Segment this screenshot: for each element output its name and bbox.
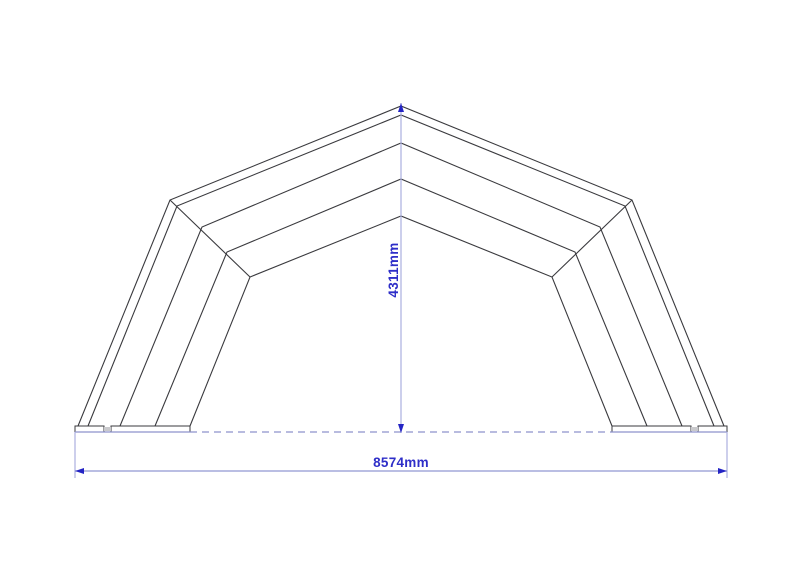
baseplate-gap-2 (691, 427, 698, 431)
dimension-layer (75, 103, 727, 478)
width-dimension-label: 8574mm (373, 455, 429, 470)
baseplate-gap-1 (104, 427, 111, 431)
baseplate-3 (612, 426, 691, 432)
technical-drawing: 4311mm 8574mm (0, 0, 800, 566)
height-dimension-label: 4311mm (386, 242, 401, 297)
baseplate-1 (75, 426, 104, 432)
width-dimension-arrow-right (718, 468, 727, 474)
width-dimension-arrow-left (75, 468, 84, 474)
baseplate-2 (111, 426, 190, 432)
drawing-canvas: 4311mm 8574mm (0, 0, 800, 566)
height-dimension-arrow-up (398, 103, 404, 112)
baseplate-4 (698, 426, 727, 432)
